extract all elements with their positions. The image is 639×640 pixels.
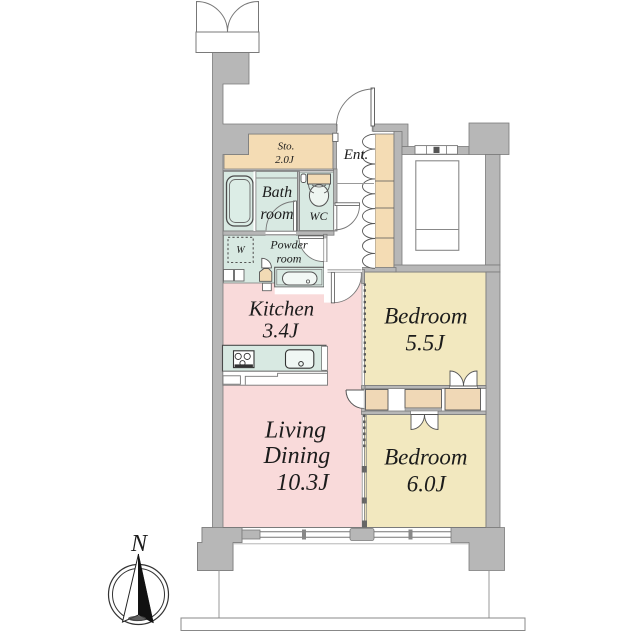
svg-text:3.4J: 3.4J bbox=[262, 319, 300, 343]
svg-text:N: N bbox=[130, 531, 149, 557]
svg-text:10.3J: 10.3J bbox=[276, 470, 330, 496]
svg-text:Bedroom: Bedroom bbox=[384, 445, 467, 470]
svg-text:Ent.: Ent. bbox=[343, 147, 369, 163]
svg-text:room: room bbox=[260, 206, 293, 223]
svg-text:Powder: Powder bbox=[269, 238, 308, 252]
svg-text:2.0J: 2.0J bbox=[275, 154, 295, 166]
svg-text:Bedroom: Bedroom bbox=[384, 304, 467, 329]
svg-text:WC: WC bbox=[310, 209, 329, 223]
svg-text:Bath: Bath bbox=[262, 184, 292, 201]
svg-text:room: room bbox=[277, 252, 302, 266]
svg-text:5.5J: 5.5J bbox=[406, 331, 447, 356]
svg-text:Living: Living bbox=[264, 418, 326, 444]
svg-text:Kitchen: Kitchen bbox=[248, 297, 314, 321]
svg-text:Dining: Dining bbox=[263, 443, 331, 469]
svg-text:Sto.: Sto. bbox=[278, 141, 295, 153]
svg-text:6.0J: 6.0J bbox=[407, 472, 448, 497]
